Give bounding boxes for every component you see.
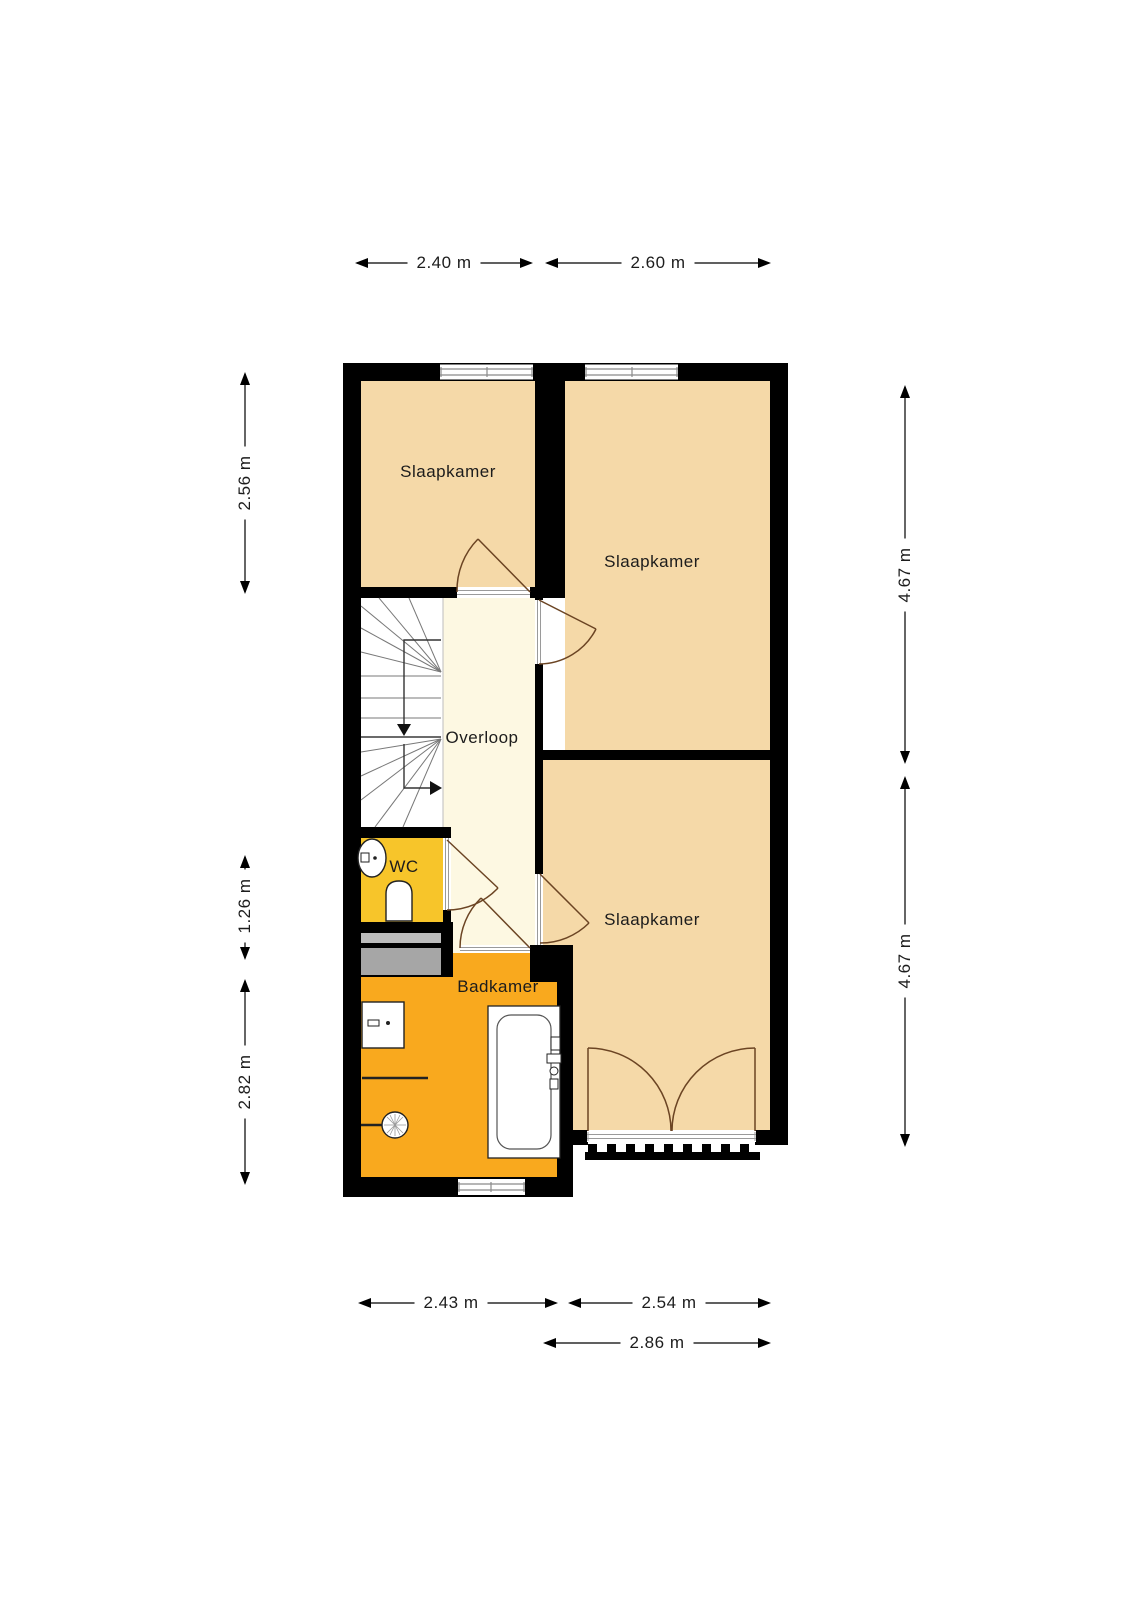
washbasin-tap-icon (361, 853, 369, 862)
room-label-slaapkamer-top-right: Slaapkamer (604, 552, 700, 572)
room-label-overloop: Overloop (446, 728, 519, 748)
room-label-wc: WC (389, 857, 418, 877)
window-top-left-icon (440, 365, 533, 380)
wall-wc-right-lower (443, 910, 451, 923)
wall-above-wc (343, 827, 451, 838)
radiator-icon (382, 1112, 408, 1138)
dim-label-bottom-left: 2.43 m (415, 1293, 488, 1313)
dim-label-left-middle: 1.26 m (235, 870, 255, 943)
room-label-slaapkamer-bottom: Slaapkamer (604, 910, 700, 930)
wall-bottom-right-b (755, 1130, 788, 1145)
floorplan-canvas: Slaapkamer Slaapkamer Slaapkamer Overloo… (0, 0, 1132, 1600)
window-badkamer-icon (458, 1179, 525, 1195)
dim-label-right-bottom: 4.67 m (895, 925, 915, 998)
wall-bottom-right-a (573, 1130, 588, 1145)
threshold-badkamer (460, 945, 530, 953)
toilet-icon (386, 881, 412, 921)
window-top-right-icon (585, 365, 678, 380)
dim-label-top-right: 2.60 m (622, 253, 695, 273)
threshold-wc (443, 838, 451, 910)
floor-slaapkamer-top-left (361, 381, 535, 587)
wall-bedroom-divider (535, 363, 565, 598)
floor-slaapkamer-bottom (543, 760, 770, 1130)
dim-label-left-top: 2.56 m (235, 447, 255, 520)
dim-label-bottom-overall: 2.86 m (621, 1333, 694, 1353)
room-label-badkamer: Badkamer (457, 977, 538, 997)
wall-top (343, 363, 788, 381)
floor-overloop (443, 598, 535, 953)
dim-label-left-bottom: 2.82 m (235, 1046, 255, 1119)
floorplan-drawing (0, 0, 1132, 1600)
dim-label-right-top: 4.67 m (895, 539, 915, 612)
room-label-slaapkamer-top-left: Slaapkamer (400, 462, 496, 482)
threshold-bottom-bedroom (535, 874, 543, 945)
wall-between-right-bedrooms (535, 750, 788, 760)
balcony-hatch-icon (585, 1144, 760, 1160)
bathtub-icon (488, 1006, 561, 1158)
wall-under-top-left-bedroom (343, 587, 565, 598)
dim-label-bottom-right: 2.54 m (633, 1293, 706, 1313)
threshold-french-doors (587, 1131, 756, 1142)
threshold-top-left-bedroom (457, 587, 530, 598)
shaft-icon (361, 933, 441, 975)
dim-label-top-left: 2.40 m (408, 253, 481, 273)
threshold-top-right-bedroom (535, 600, 543, 664)
wall-left (343, 363, 361, 1197)
